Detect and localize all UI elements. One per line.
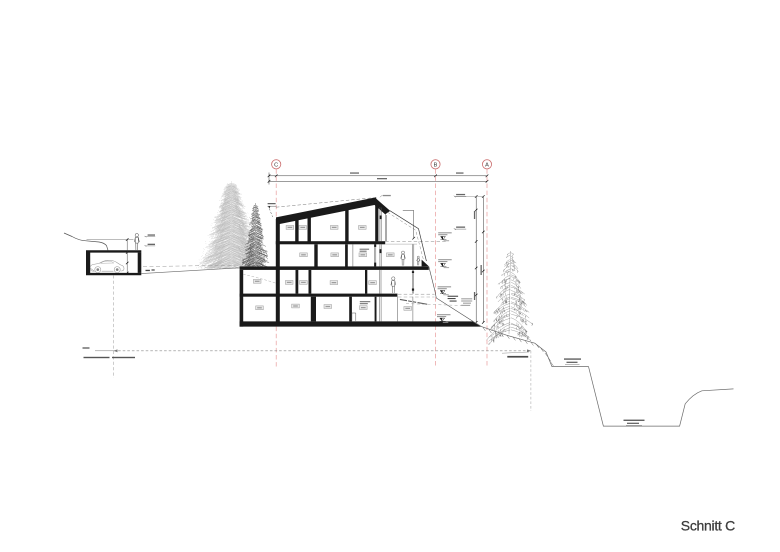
svg-text:B: B bbox=[434, 162, 438, 168]
svg-text:C: C bbox=[274, 162, 278, 168]
svg-text:Schnitt C: Schnitt C bbox=[681, 517, 735, 533]
svg-text:A: A bbox=[485, 162, 489, 168]
